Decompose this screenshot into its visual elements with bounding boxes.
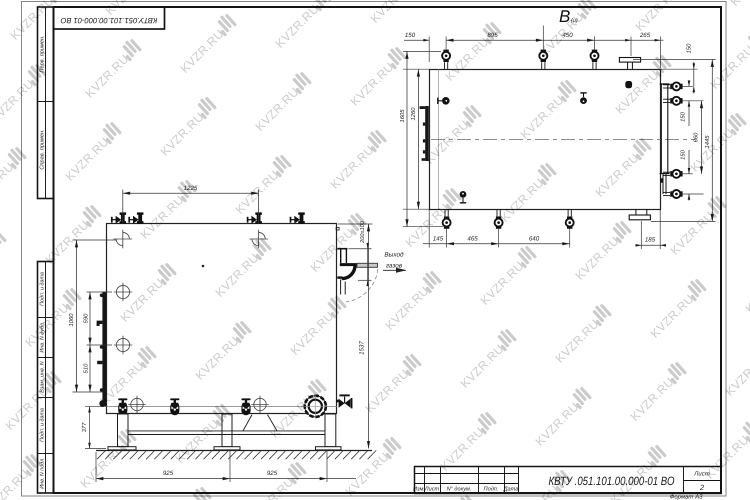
svg-text:590: 590 (83, 313, 90, 323)
svg-text:2: 2 (699, 483, 705, 492)
svg-text:660: 660 (693, 132, 700, 142)
svg-text:925: 925 (163, 470, 174, 477)
svg-text:КВТУ.051.101.00.000-01 ВО: КВТУ.051.101.00.000-01 ВО (61, 16, 158, 25)
svg-text:150: 150 (680, 149, 687, 159)
svg-text:газов: газов (386, 263, 403, 270)
svg-text:Формат А3: Формат А3 (670, 494, 703, 500)
svg-text:Инв. N подл.: Инв. N подл. (39, 457, 45, 489)
svg-text:Справ. примен.: Справ. примен. (39, 129, 45, 169)
svg-text:510: 510 (83, 363, 90, 373)
svg-text:640: 640 (529, 235, 540, 242)
svg-text:150: 150 (680, 111, 687, 121)
svg-text:Лист: Лист (424, 487, 440, 493)
svg-text:Дата: Дата (503, 487, 519, 493)
svg-text:925: 925 (267, 470, 278, 477)
svg-text:Изм.: Изм. (413, 487, 425, 493)
svg-text:Подп.: Подп. (484, 486, 499, 493)
svg-text:1060: 1060 (68, 313, 75, 327)
svg-text:N° докум.: N° докум. (447, 486, 472, 493)
svg-text:465: 465 (467, 235, 478, 242)
svg-text:Подп. и дата: Подп. и дата (39, 272, 45, 306)
svg-text:1537: 1537 (359, 341, 366, 355)
svg-text:185: 185 (645, 237, 656, 244)
svg-text:Перв. примен.: Перв. примен. (39, 35, 45, 72)
svg-text:145: 145 (433, 235, 444, 242)
svg-text:150: 150 (405, 32, 416, 39)
svg-text:Выход: Выход (384, 252, 404, 259)
svg-text:377: 377 (81, 422, 88, 432)
svg-text:150: 150 (686, 43, 693, 53)
svg-text:1605: 1605 (399, 109, 406, 123)
svg-text:1260: 1260 (410, 107, 417, 121)
svg-text:Подп. и дата: Подп. и дата (39, 408, 45, 442)
